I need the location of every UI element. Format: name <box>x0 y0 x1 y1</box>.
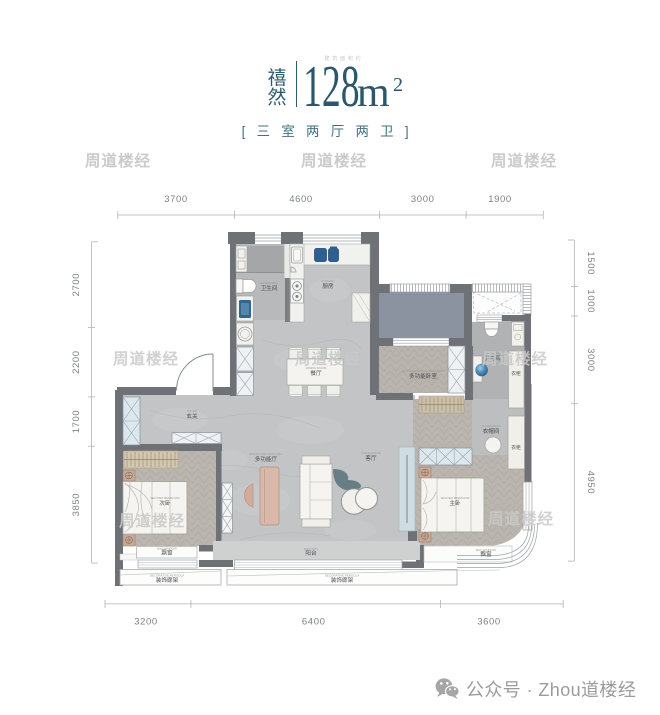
svg-text:衣帽间: 衣帽间 <box>483 427 500 435</box>
svg-text:卫生间: 卫生间 <box>261 284 278 292</box>
svg-text:多功能厅: 多功能厅 <box>255 455 278 463</box>
svg-text:1000: 1000 <box>585 289 596 313</box>
svg-text:DECORATIVE PERGOLA: DECORATIVE PERGOLA <box>325 574 360 578</box>
svg-text:6400: 6400 <box>302 617 326 628</box>
svg-text:多功能卧室: 多功能卧室 <box>409 372 437 380</box>
svg-text:3000: 3000 <box>585 348 596 372</box>
svg-text:LIVING ROOM: LIVING ROOM <box>361 451 382 455</box>
svg-text:周道楼经: 周道楼经 <box>301 151 367 170</box>
svg-text:然: 然 <box>267 87 286 109</box>
svg-text:3000: 3000 <box>411 194 435 205</box>
svg-text:周道楼经: 周道楼经 <box>482 349 548 368</box>
svg-text:4950: 4950 <box>585 471 596 495</box>
svg-text:DECORATIVE PERGOLA: DECORATIVE PERGOLA <box>150 574 185 578</box>
svg-text:周道楼经: 周道楼经 <box>113 349 179 368</box>
svg-text:3700: 3700 <box>164 194 188 205</box>
svg-text:BAY WINDOW: BAY WINDOW <box>476 548 496 552</box>
svg-text:FOYER: FOYER <box>187 409 198 413</box>
svg-text:衣柜: 衣柜 <box>511 444 521 451</box>
svg-text:1900: 1900 <box>488 194 512 205</box>
svg-text:主卧: 主卧 <box>449 499 461 507</box>
svg-text:周道楼经: 周道楼经 <box>295 349 361 368</box>
svg-text:4600: 4600 <box>289 194 313 205</box>
svg-text:3200: 3200 <box>134 617 158 628</box>
svg-text:公众号 · Zhou道楼经: 公众号 · Zhou道楼经 <box>466 680 636 700</box>
svg-text:2700: 2700 <box>71 273 82 297</box>
svg-text:客厅: 客厅 <box>365 454 377 462</box>
svg-text:3850: 3850 <box>71 493 82 517</box>
svg-text:BALCONY: BALCONY <box>304 547 318 551</box>
svg-text:SECOND BEDROOM: SECOND BEDROOM <box>150 496 180 500</box>
svg-text:周道楼经: 周道楼经 <box>85 151 151 170</box>
svg-text:禧: 禧 <box>267 67 286 89</box>
svg-text:周道楼经: 周道楼经 <box>488 509 554 528</box>
svg-text:周道楼经: 周道楼经 <box>119 511 185 530</box>
svg-text:MULTI-FUNCTION HALL: MULTI-FUNCTION HALL <box>249 452 283 456</box>
svg-text:次卧: 次卧 <box>159 499 171 507</box>
svg-text:MASTER BEDROOM: MASTER BEDROOM <box>441 496 470 500</box>
svg-text:MULTI-FUNCTION BEDROOM: MULTI-FUNCTION BEDROOM <box>402 369 444 373</box>
svg-text:KITCHEN: KITCHEN <box>321 279 334 283</box>
svg-text:周道楼经: 周道楼经 <box>491 151 557 170</box>
svg-text:2200: 2200 <box>71 350 82 374</box>
svg-text:2: 2 <box>393 74 403 96</box>
svg-text:128: 128 <box>303 54 360 120</box>
svg-text:3600: 3600 <box>477 617 501 628</box>
svg-text:1700: 1700 <box>71 410 82 434</box>
svg-text:[ 三 室 两 厅 两 卫 ]: [ 三 室 两 厅 两 卫 ] <box>242 123 413 139</box>
svg-text:厨房: 厨房 <box>322 282 334 290</box>
svg-text:BATHROOM: BATHROOM <box>260 281 278 285</box>
svg-text:1500: 1500 <box>585 251 596 275</box>
svg-text:m: m <box>357 70 390 116</box>
svg-text:衣柜: 衣柜 <box>511 370 521 377</box>
svg-text:CLOAKROOM: CLOAKROOM <box>481 424 501 428</box>
svg-text:餐厅: 餐厅 <box>310 369 322 377</box>
svg-text:BAY WINDOW: BAY WINDOW <box>157 547 177 551</box>
svg-text:玄关: 玄关 <box>186 412 198 420</box>
